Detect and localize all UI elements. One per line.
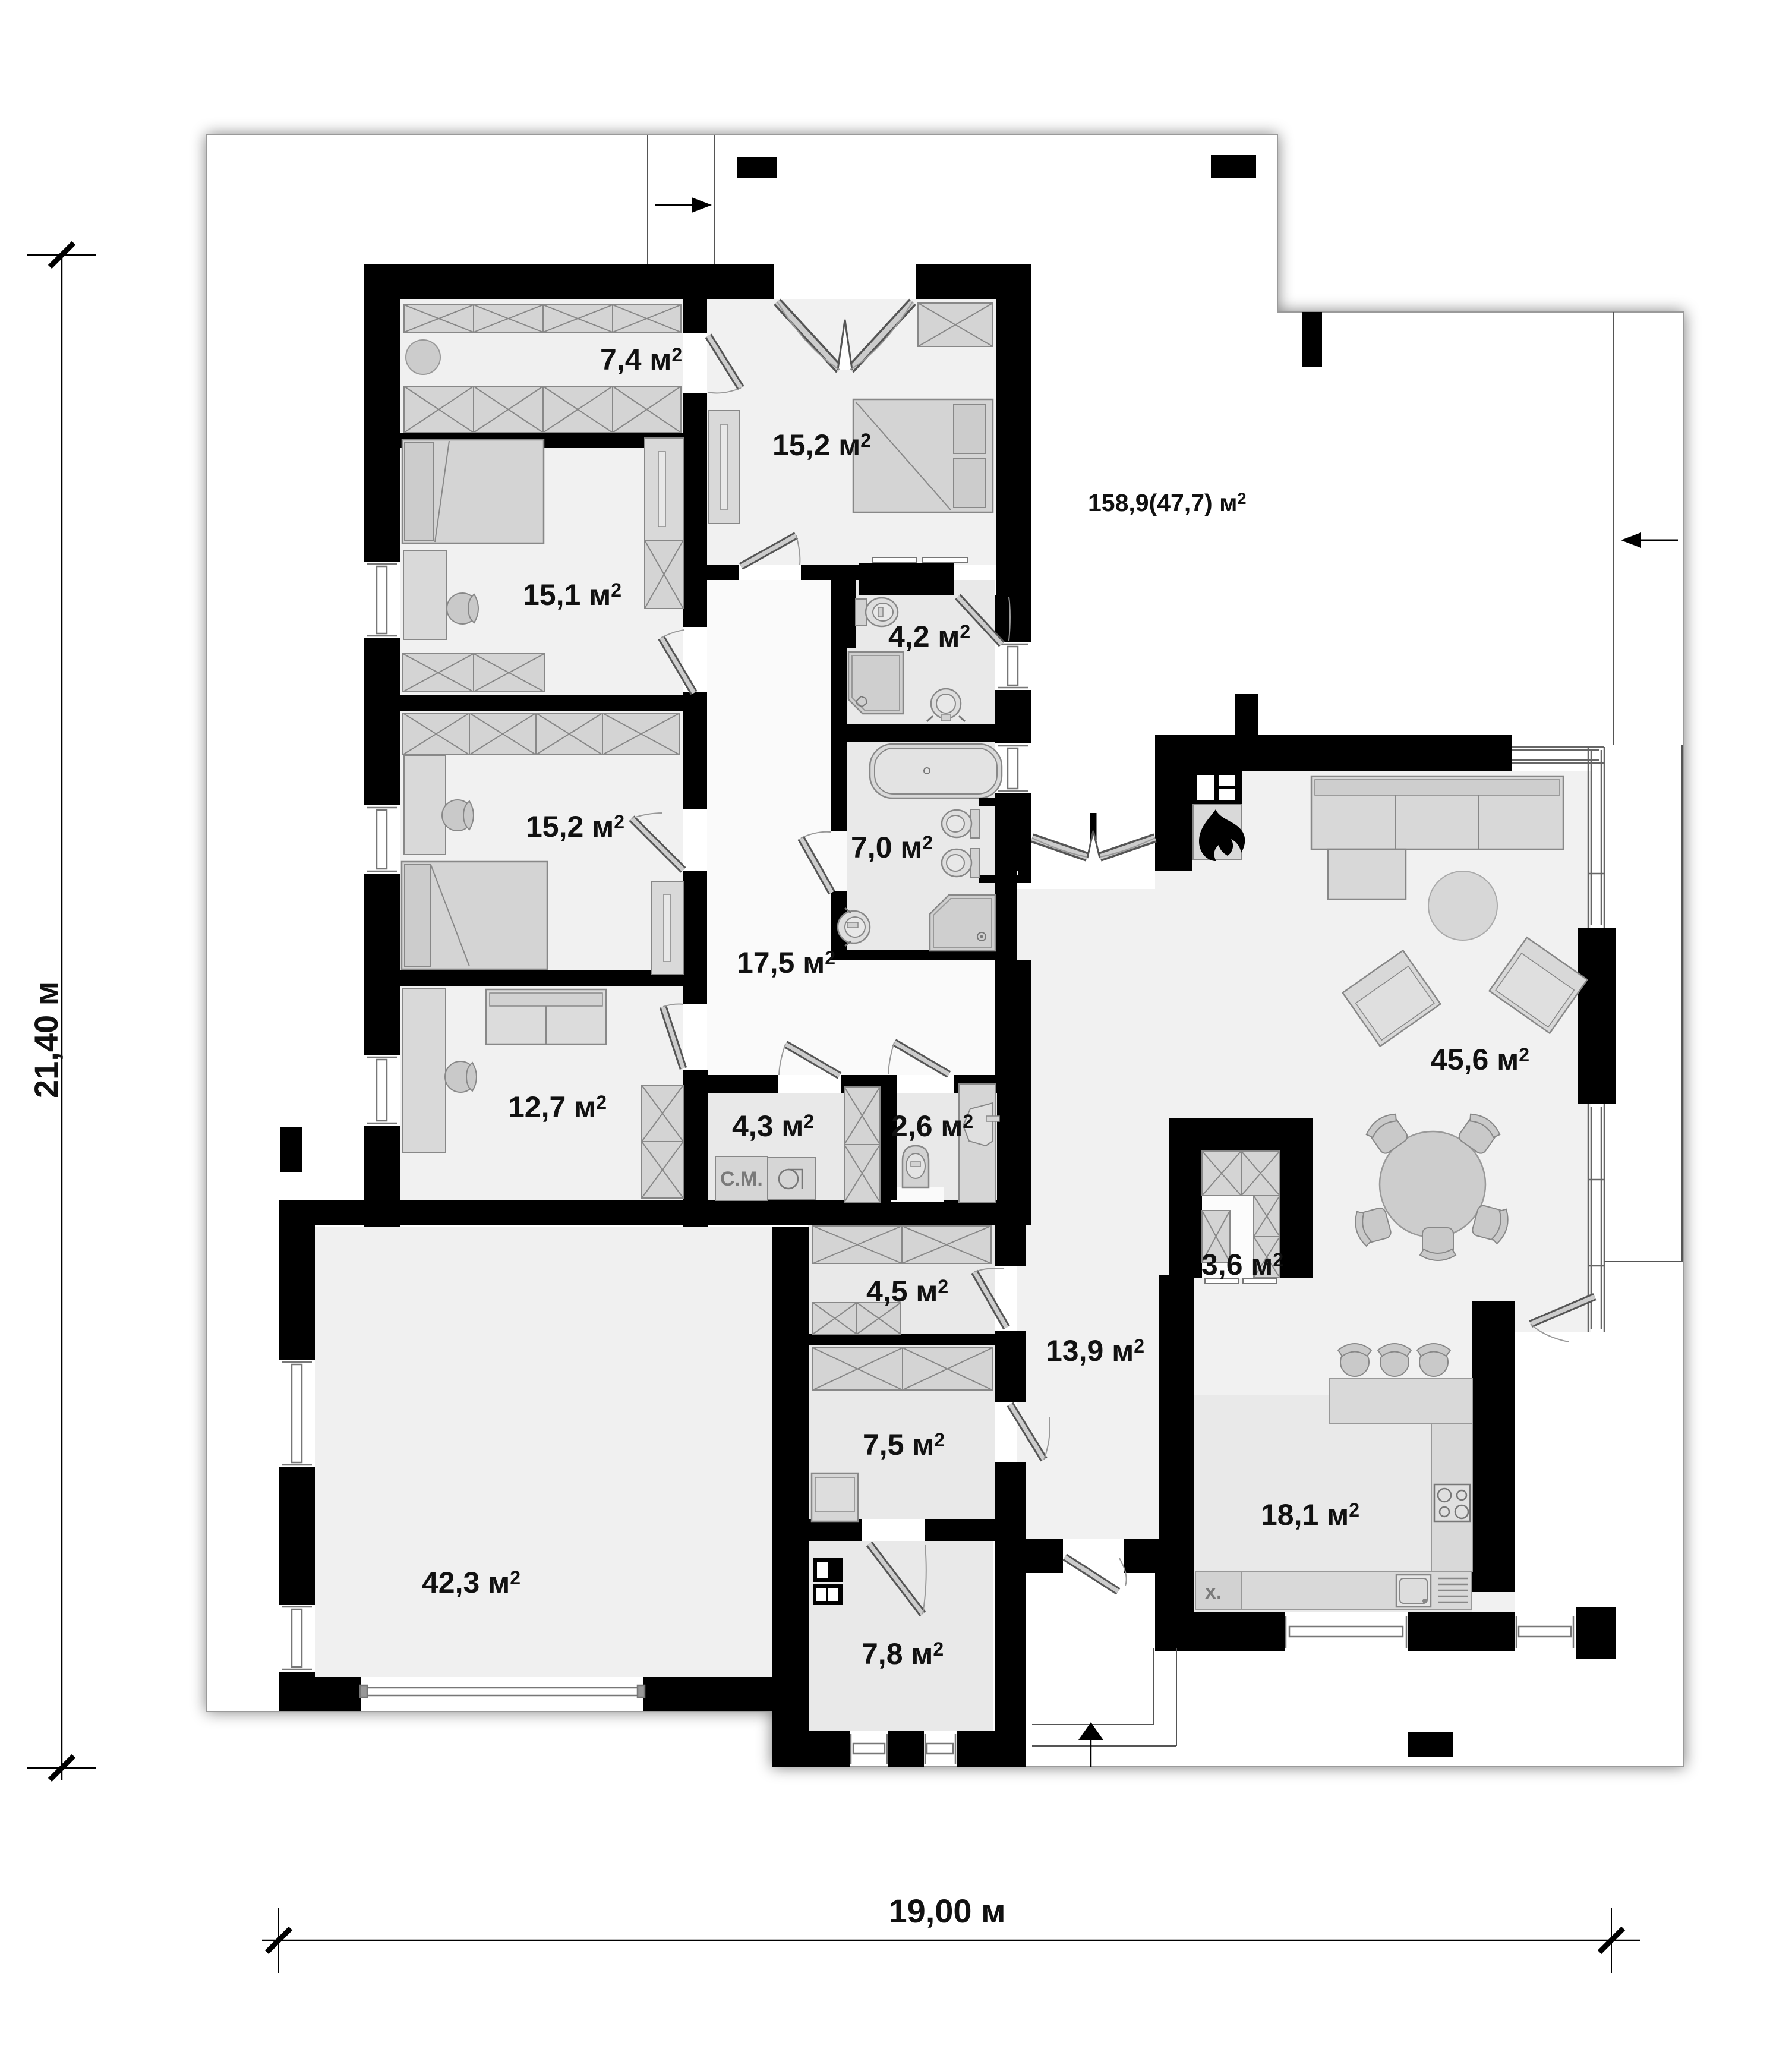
svg-text:17,5 м2: 17,5 м2 bbox=[737, 946, 835, 979]
svg-text:7,5 м2: 7,5 м2 bbox=[863, 1428, 945, 1461]
svg-text:13,9 м2: 13,9 м2 bbox=[1046, 1334, 1144, 1367]
svg-text:15,2 м2: 15,2 м2 bbox=[772, 428, 871, 462]
svg-text:21,40 м: 21,40 м bbox=[27, 981, 65, 1098]
svg-text:15,1 м2: 15,1 м2 bbox=[523, 578, 621, 611]
svg-text:7,8 м2: 7,8 м2 bbox=[862, 1637, 944, 1670]
svg-text:4,3 м2: 4,3 м2 bbox=[732, 1109, 814, 1143]
svg-text:4,5 м2: 4,5 м2 bbox=[866, 1275, 948, 1308]
svg-text:х.: х. bbox=[1205, 1581, 1222, 1603]
svg-text:18,1 м2: 18,1 м2 bbox=[1261, 1498, 1359, 1531]
svg-text:3,6 м2: 3,6 м2 bbox=[1201, 1248, 1283, 1281]
svg-text:158,9(47,7) м2: 158,9(47,7) м2 bbox=[1088, 489, 1246, 516]
svg-text:С.М.: С.М. bbox=[720, 1168, 763, 1190]
svg-text:4,2 м2: 4,2 м2 bbox=[888, 620, 970, 653]
svg-text:2,6 м2: 2,6 м2 bbox=[891, 1109, 973, 1143]
svg-text:7,0 м2: 7,0 м2 bbox=[851, 831, 933, 864]
svg-text:7,4 м2: 7,4 м2 bbox=[600, 343, 682, 376]
svg-text:12,7 м2: 12,7 м2 bbox=[508, 1090, 607, 1124]
svg-text:15,2 м2: 15,2 м2 bbox=[526, 810, 624, 843]
svg-text:45,6 м2: 45,6 м2 bbox=[1431, 1043, 1529, 1076]
svg-text:19,00 м: 19,00 м bbox=[888, 1892, 1005, 1930]
svg-text:42,3 м2: 42,3 м2 bbox=[422, 1566, 520, 1599]
